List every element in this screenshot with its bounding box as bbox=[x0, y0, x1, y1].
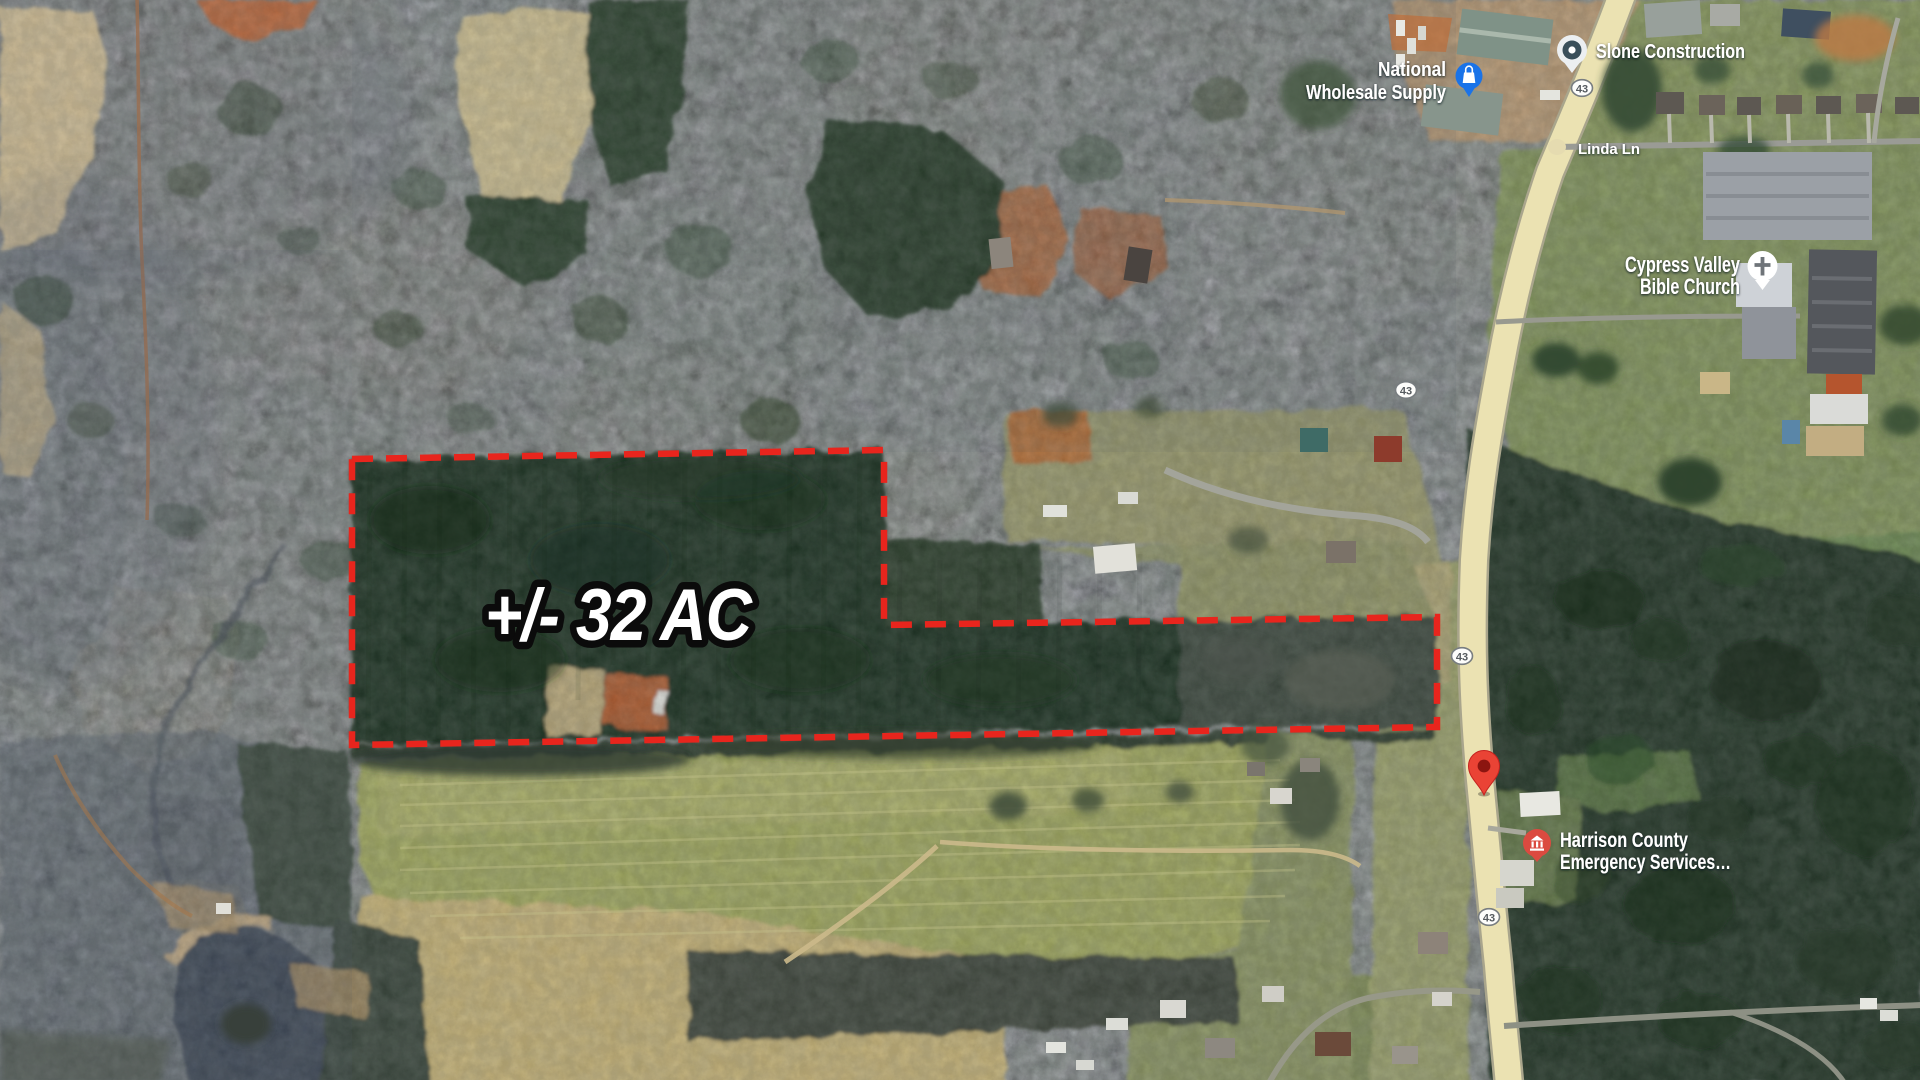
svg-text:+/- 32 AC: +/- 32 AC bbox=[485, 574, 753, 656]
svg-text:Wholesale Supply: Wholesale Supply bbox=[1306, 82, 1447, 104]
svg-text:National: National bbox=[1378, 59, 1446, 81]
svg-text:43: 43 bbox=[1483, 913, 1495, 925]
svg-text:Linda Ln: Linda Ln bbox=[1578, 141, 1640, 158]
svg-text:Slone Construction: Slone Construction bbox=[1596, 41, 1745, 63]
svg-text:43: 43 bbox=[1400, 386, 1412, 398]
svg-text:43: 43 bbox=[1456, 652, 1468, 664]
svg-text:Emergency Services…: Emergency Services… bbox=[1560, 851, 1731, 874]
svg-text:43: 43 bbox=[1576, 84, 1588, 96]
svg-text:Harrison County: Harrison County bbox=[1560, 829, 1688, 852]
svg-text:Bible Church: Bible Church bbox=[1640, 274, 1740, 299]
